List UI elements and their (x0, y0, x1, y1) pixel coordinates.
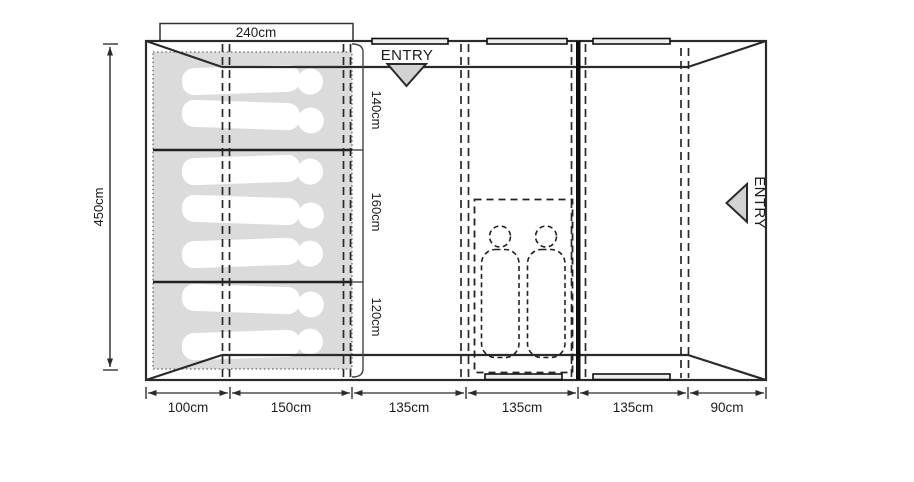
bottom-width-label-4: 135cm (502, 400, 543, 415)
entry-right-arrow-icon (727, 184, 748, 222)
dimension-left-height: 450cm (91, 44, 118, 370)
entry-right: ENTRY (727, 176, 769, 229)
entry-top-arrow-icon (388, 64, 427, 86)
bottom-width-label-2: 150cm (271, 400, 312, 415)
section-label-3: 120cm (369, 297, 384, 336)
bedroom-person (528, 226, 566, 358)
left-height-label: 450cm (91, 187, 106, 226)
bedroom-person (482, 226, 520, 358)
centre-divider-wall (576, 41, 581, 380)
dimension-right-sections: 140cm 160cm 120cm (352, 44, 384, 377)
bottom-width-label-1: 100cm (168, 400, 209, 415)
wall-panel-bars (372, 39, 670, 380)
section-label-1: 140cm (369, 90, 384, 129)
dimension-top-width: 240cm (160, 24, 353, 41)
bedroom-occupants (482, 226, 566, 358)
floorplan-svg: 240cm 450cm 140cm 160cm 120cm (0, 0, 914, 482)
bottom-width-label-3: 135cm (389, 400, 430, 415)
entry-top-label: ENTRY (381, 47, 434, 64)
bottom-width-label-6: 90cm (710, 400, 743, 415)
dimension-bottom-chain: 100cm 150cm 135cm 135cm 135cm 90cm (146, 387, 766, 415)
entry-right-label: ENTRY (751, 176, 768, 229)
section-label-2: 160cm (369, 192, 384, 231)
bottom-width-label-5: 135cm (613, 400, 654, 415)
bedroom-outline (475, 200, 573, 373)
tent-floorplan-diagram: 240cm 450cm 140cm 160cm 120cm (0, 0, 914, 482)
top-width-label: 240cm (236, 25, 277, 40)
